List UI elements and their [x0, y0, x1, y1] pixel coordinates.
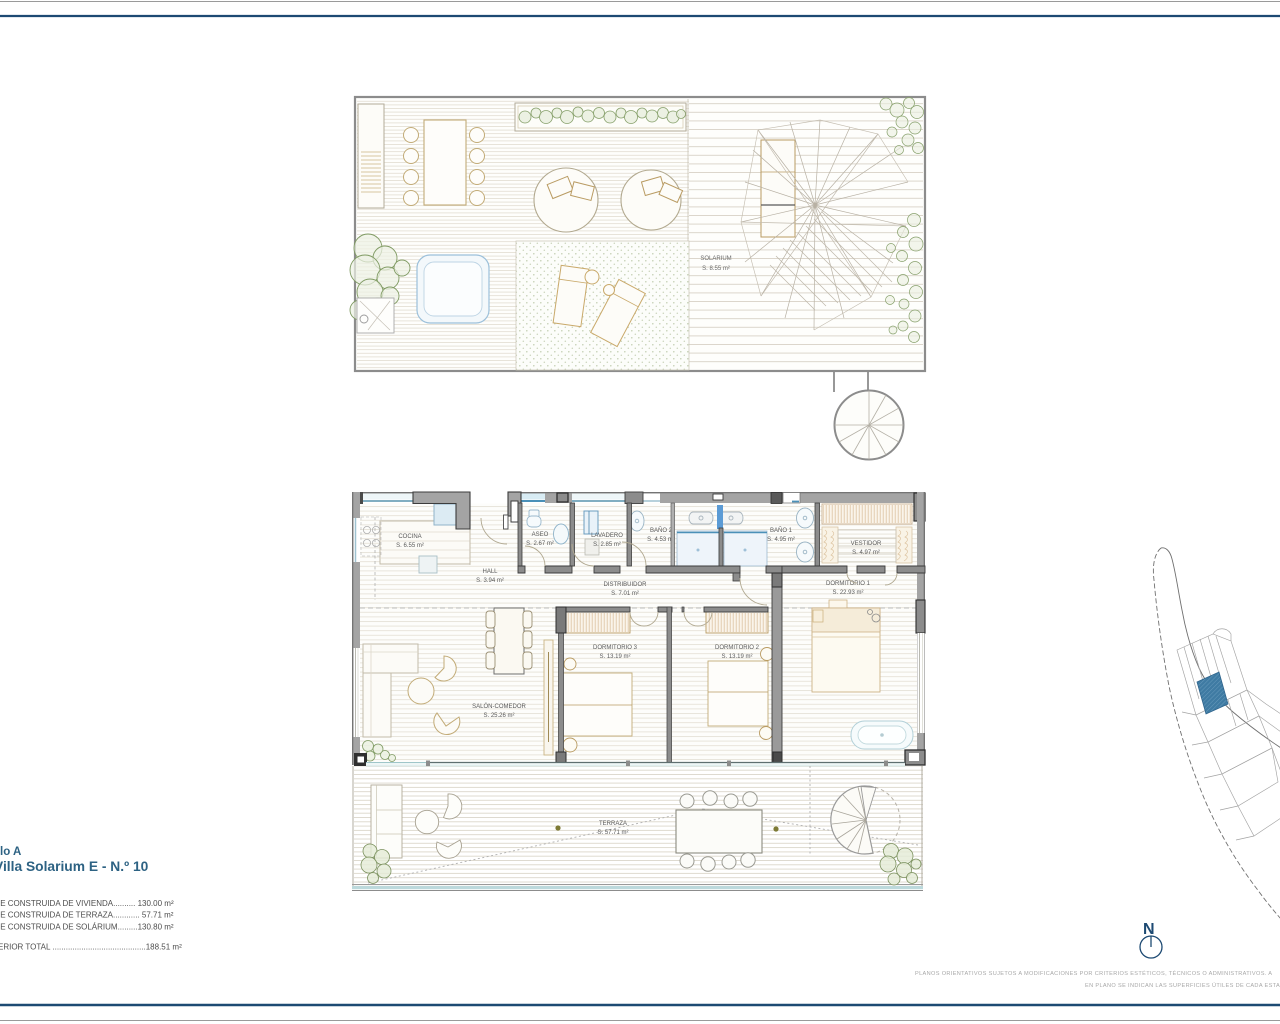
svg-text:S. 57.71 m²: S. 57.71 m² [597, 830, 628, 836]
svg-text:S. 4.97 m²: S. 4.97 m² [852, 550, 880, 556]
svg-text:DORMITORIO 2: DORMITORIO 2 [715, 645, 760, 651]
svg-text:S. 25.26 m²: S. 25.26 m² [483, 713, 514, 719]
svg-text:HALL: HALL [482, 569, 498, 575]
svg-text:S. 7.01 m²: S. 7.01 m² [611, 591, 639, 597]
svg-text:DORMITORIO 1: DORMITORIO 1 [826, 581, 871, 587]
svg-text:BAÑO 1: BAÑO 1 [770, 527, 793, 534]
svg-text:N: N [1143, 921, 1155, 938]
svg-text:Modelo A: Modelo A [0, 846, 21, 858]
svg-text:S. 2.67 m²: S. 2.67 m² [526, 541, 554, 547]
svg-text:EN PLANO SE INDICAN LAS SUPERF: EN PLANO SE INDICAN LAS SUPERFICIES ÚTIL… [1085, 982, 1280, 989]
svg-text:DISTRIBUIDOR: DISTRIBUIDOR [603, 582, 647, 588]
svg-text:IE CONSTRUIDA DE TERRAZA......: IE CONSTRUIDA DE TERRAZA............ 57.… [0, 911, 174, 920]
svg-text:S. 2.85 m²: S. 2.85 m² [593, 542, 621, 548]
svg-text:S. 13.19 m²: S. 13.19 m² [599, 654, 630, 660]
svg-text:COCINA: COCINA [398, 534, 421, 540]
svg-text:TERRAZA: TERRAZA [599, 821, 627, 827]
svg-text:DORMITORIO 3: DORMITORIO 3 [593, 645, 638, 651]
svg-text:S. 8.55 m²: S. 8.55 m² [702, 266, 730, 272]
svg-text:ASEO: ASEO [532, 532, 549, 538]
svg-text:BAÑO 2: BAÑO 2 [650, 527, 673, 534]
svg-text:S. 4.95 m²: S. 4.95 m² [767, 537, 795, 543]
svg-text:Villa Solarium E - N.º 10: Villa Solarium E - N.º 10 [0, 859, 149, 874]
svg-text:S. 22.93 m²: S. 22.93 m² [832, 590, 863, 596]
svg-text:VESTIDOR: VESTIDOR [851, 541, 882, 547]
svg-text:S. 6.55 m²: S. 6.55 m² [396, 543, 424, 549]
svg-text:IE CONSTRUIDA DE VIVIENDA.....: IE CONSTRUIDA DE VIVIENDA.......... 130.… [0, 899, 174, 908]
svg-text:SOLARIUM: SOLARIUM [700, 256, 731, 262]
svg-text:IE CONSTRUIDA DE SOLÁRIUM.....: IE CONSTRUIDA DE SOLÁRIUM.........130.80… [0, 923, 174, 932]
svg-text:S. 13.19 m²: S. 13.19 m² [721, 654, 752, 660]
svg-text:LAVADERO: LAVADERO [591, 533, 623, 539]
svg-text:PLANOS ORIENTATIVOS SUJETOS A: PLANOS ORIENTATIVOS SUJETOS A MODIFICACI… [915, 970, 1272, 977]
svg-text:S. 3.94 m²: S. 3.94 m² [476, 578, 504, 584]
svg-text:SALÓN-COMEDOR: SALÓN-COMEDOR [472, 703, 526, 710]
svg-text:ERIOR TOTAL ..................: ERIOR TOTAL ............................… [0, 943, 182, 952]
